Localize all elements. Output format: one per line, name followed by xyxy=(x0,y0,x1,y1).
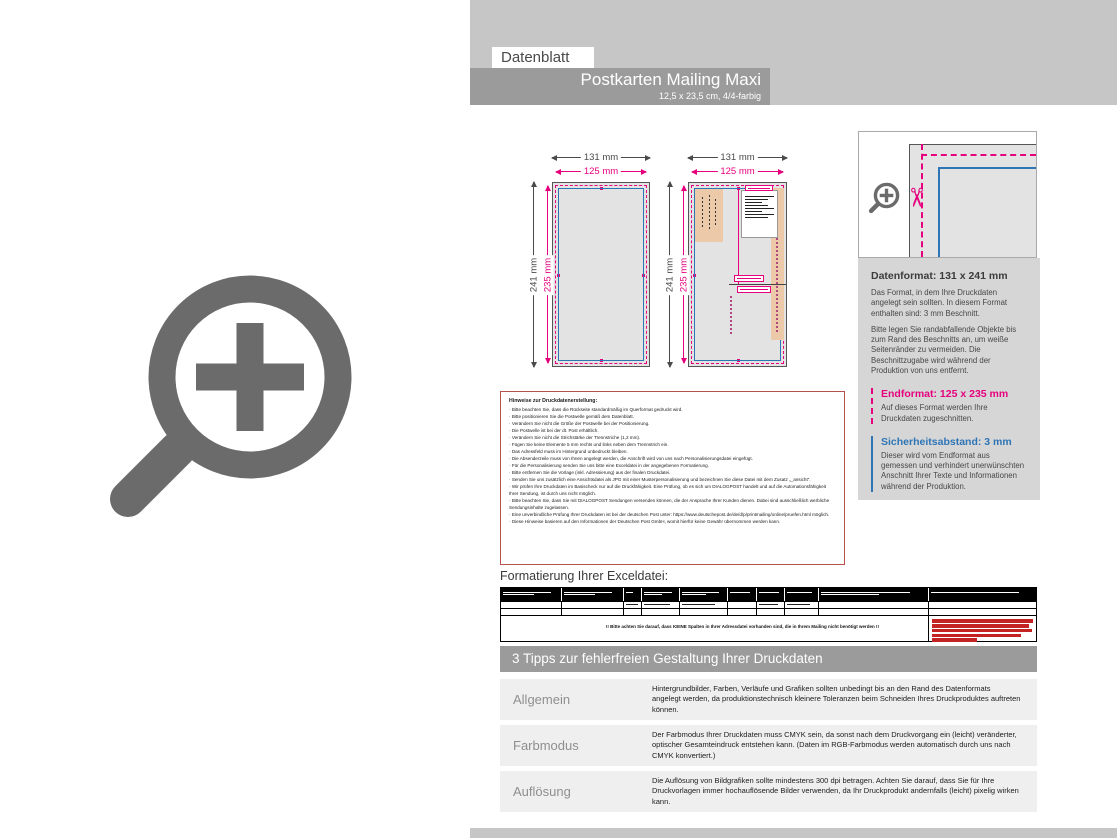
excel-warning: !! Bitte achten Sie darauf, dass KEINE S… xyxy=(501,616,928,641)
hinweise-item: Wir prüfen Ihre Druckdaten im Basischeck… xyxy=(509,483,836,497)
tip-label: Farbmodus xyxy=(500,738,652,753)
datenformat-text-2: Bitte legen Sie randabfallende Objekte b… xyxy=(871,325,1027,376)
page-title: Postkarten Mailing Maxi xyxy=(470,68,761,90)
dim-front-height-outer: 241 mm xyxy=(533,182,534,367)
dim-front-height-inner: 235 mm xyxy=(547,186,548,363)
excel-header-cell xyxy=(929,588,1036,601)
dim-back-width-outer: 131 mm xyxy=(688,157,787,158)
page: Datenblatt Postkarten Mailing Maxi 12,5 … xyxy=(0,0,1117,838)
excel-header-cell xyxy=(728,588,757,601)
hinweise-title: Hinweise zur Druckdatenerstellung: xyxy=(509,398,836,404)
excel-sample-row xyxy=(501,601,1036,608)
tipps-rows: Allgemein Hintergrundbilder, Farben, Ver… xyxy=(500,679,1037,817)
tipps-header-bar: 3 Tipps zur fehlerfreien Gestaltung Ihre… xyxy=(500,646,1037,672)
card-front-diagram xyxy=(552,182,650,367)
zoom-in-icon[interactable] xyxy=(95,255,365,555)
excel-header-cell xyxy=(624,588,642,601)
sheet-label: Datenblatt xyxy=(492,47,594,69)
zone-label-chip xyxy=(734,275,764,282)
dim-front-width-inner: 125 mm xyxy=(556,171,646,172)
sicherheitsabstand-title: Sicherheitsabstand: 3 mm xyxy=(881,436,1027,448)
tip-row: Allgemein Hintergrundbilder, Farben, Ver… xyxy=(500,679,1037,720)
tip-row: Farbmodus Der Farbmodus Ihrer Druckdaten… xyxy=(500,725,1037,766)
page-subtitle: 12,5 x 23,5 cm, 4/4-farbig xyxy=(470,90,761,102)
endformat-block: Endformat: 125 x 235 mm Auf dieses Forma… xyxy=(871,388,1027,424)
excel-note-row: !! Bitte achten Sie darauf, dass KEINE S… xyxy=(501,615,1036,641)
hinweise-item: Die Absenderzeile muss von Ihnen angeleg… xyxy=(509,455,836,462)
hinweise-item: Bitte beachten Sie, dass Sie mit DIALOGP… xyxy=(509,497,836,511)
advertising-zone xyxy=(695,189,723,242)
tip-text: Die Auflösung von Bildgrafiken sollte mi… xyxy=(652,776,1037,806)
hinweise-item: Bitte beachten Sie, dass die Rückseite s… xyxy=(509,406,836,413)
hinweise-item: Fügen Sie keine Elemente 5 mm rechts und… xyxy=(509,441,836,448)
cut-line-detail xyxy=(921,154,1036,156)
excel-heading: Formatierung Ihrer Exceldatei: xyxy=(500,569,668,583)
excel-empty-row xyxy=(501,608,1036,615)
franking-zone-label xyxy=(745,185,773,191)
hinweise-item: Diese Hinweise basieren auf den Informat… xyxy=(509,518,836,525)
dim-front-width-outer: 131 mm xyxy=(552,157,650,158)
endformat-title: Endformat: 125 x 235 mm xyxy=(881,388,1027,400)
excel-header-cell xyxy=(819,588,929,601)
datenformat-text-1: Das Format, in dem Ihre Druckdaten angel… xyxy=(871,288,1027,319)
format-info-box: Datenformat: 131 x 241 mm Das Format, in… xyxy=(858,258,1040,500)
excel-header-cell xyxy=(757,588,785,601)
hinweise-item: Verändern Sie nicht die Strichstärke der… xyxy=(509,434,836,441)
datenformat-title: Datenformat: 131 x 241 mm xyxy=(871,270,1027,282)
sicherheitsabstand-block: Sicherheitsabstand: 3 mm Dieser wird vom… xyxy=(871,436,1027,492)
dim-back-height-inner: 235 mm xyxy=(683,186,684,363)
title-bar: Postkarten Mailing Maxi 12,5 x 23,5 cm, … xyxy=(470,68,770,105)
zone-dimension-line xyxy=(738,190,739,285)
hinweise-item: Bitte positionieren Sie die Postwelle ge… xyxy=(509,413,836,420)
detail-zoom-box: ✂ xyxy=(858,131,1037,258)
card-back-diagram xyxy=(688,182,787,367)
excel-header-cell xyxy=(680,588,728,601)
tip-label: Allgemein xyxy=(500,692,652,707)
datasheet-panel: Datenblatt Postkarten Mailing Maxi 12,5 … xyxy=(470,0,1117,838)
excel-red-note xyxy=(928,616,1036,641)
dim-back-width-inner: 125 mm xyxy=(692,171,783,172)
zone-micro-label xyxy=(730,296,732,334)
tip-label: Auflösung xyxy=(500,784,652,799)
hinweise-item: Das Adressfeld muss im Hintergrund unbed… xyxy=(509,448,836,455)
hinweise-item: Bitte entfernen Sie die Vorlage (inkl. A… xyxy=(509,469,836,476)
hinweise-item: Für die Personalisierung senden Sie uns … xyxy=(509,462,836,469)
hinweise-item: Senden Sie uns zusätzlich eine Ansichtsd… xyxy=(509,476,836,483)
excel-header-cell xyxy=(562,588,624,601)
tip-row: Auflösung Die Auflösung von Bildgrafiken… xyxy=(500,771,1037,812)
footer-bar xyxy=(470,828,1117,838)
hinweise-item: Die Postwelle ist bei der dt. Post erhäl… xyxy=(509,427,836,434)
address-field xyxy=(741,190,778,238)
excel-header-row xyxy=(501,588,1036,601)
zoom-icon-small xyxy=(867,180,901,218)
sicherheitsabstand-text: Dieser wird vom Endformat aus gemessen u… xyxy=(881,451,1027,492)
hinweise-list: Bitte beachten Sie, dass die Rückseite s… xyxy=(509,406,836,525)
excel-header-cell xyxy=(642,588,680,601)
excel-table: !! Bitte achten Sie darauf, dass KEINE S… xyxy=(500,587,1037,642)
zone-label-chip xyxy=(737,286,771,293)
tip-text: Der Farbmodus Ihrer Druckdaten muss CMYK… xyxy=(652,730,1037,760)
excel-header-cell xyxy=(785,588,819,601)
safety-line-detail xyxy=(938,167,940,257)
tip-text: Hintergrundbilder, Farben, Verläufe und … xyxy=(652,684,1037,714)
hinweise-box: Hinweise zur Druckdatenerstellung: Bitte… xyxy=(500,391,845,565)
safety-line-front xyxy=(558,188,644,361)
dim-back-height-outer: 241 mm xyxy=(669,182,670,367)
separator-line xyxy=(729,284,786,285)
scissors-icon: ✂ xyxy=(900,187,931,209)
endformat-text: Auf dieses Format werden Ihre Druckdaten… xyxy=(881,403,1027,424)
excel-header-cell xyxy=(501,588,562,601)
hinweise-item: Eine unverbindliche Prüfung Ihrer Druckd… xyxy=(509,511,836,518)
hinweise-item: Verändern Sie nicht die Größe der Postwe… xyxy=(509,420,836,427)
safety-line-detail xyxy=(938,167,1036,169)
